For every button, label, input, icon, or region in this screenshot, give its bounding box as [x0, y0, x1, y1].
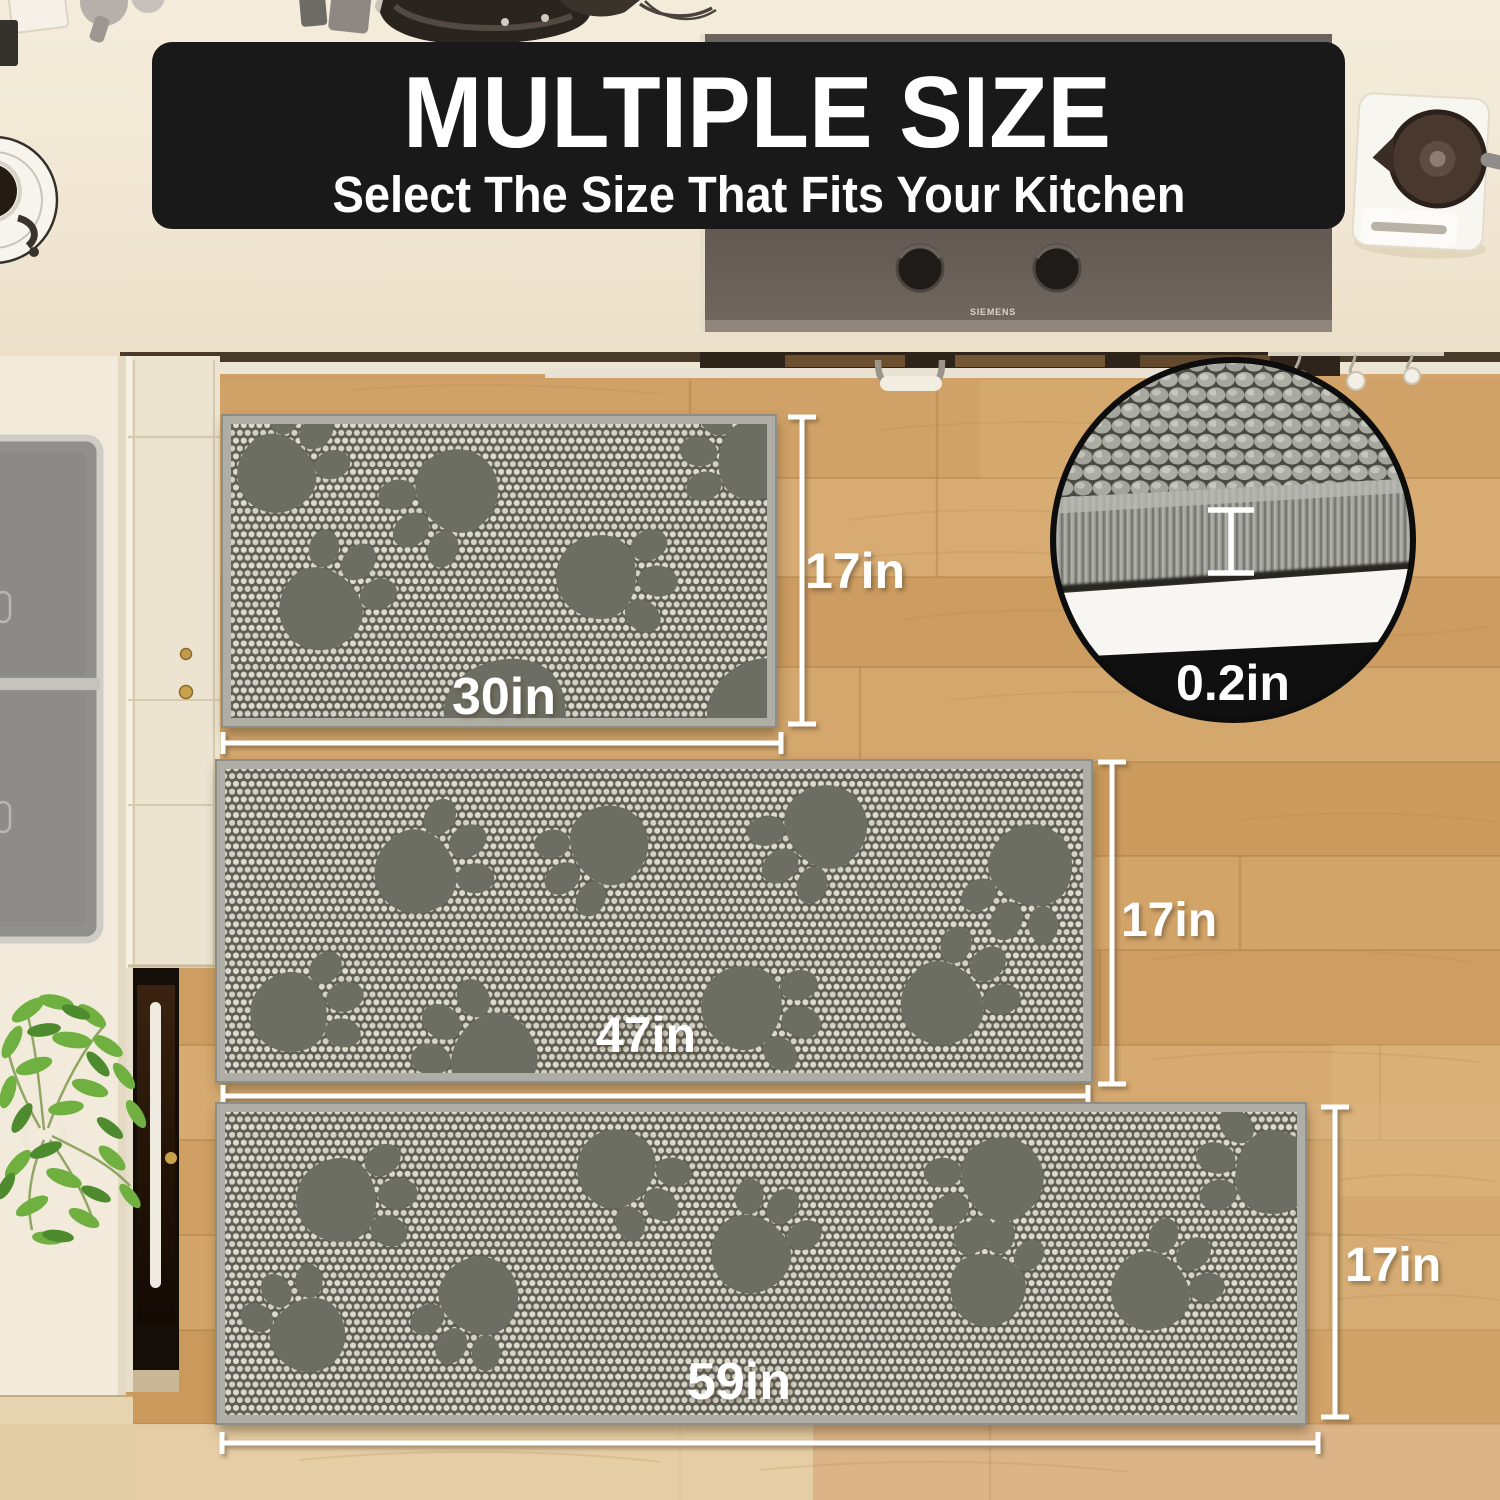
svg-text:SIEMENS: SIEMENS [970, 307, 1016, 317]
svg-text:30in: 30in [452, 668, 556, 726]
svg-text:Select The Size That Fits Your: Select The Size That Fits Your Kitchen [333, 166, 1186, 223]
svg-text:MULTIPLE SIZE: MULTIPLE SIZE [403, 57, 1111, 169]
svg-text:47in: 47in [596, 1007, 696, 1063]
svg-text:0.2in: 0.2in [1176, 655, 1290, 711]
svg-text:17in: 17in [1121, 894, 1217, 947]
svg-text:17in: 17in [805, 543, 905, 599]
svg-text:59in: 59in [687, 1353, 791, 1411]
svg-text:17in: 17in [1345, 1239, 1441, 1292]
